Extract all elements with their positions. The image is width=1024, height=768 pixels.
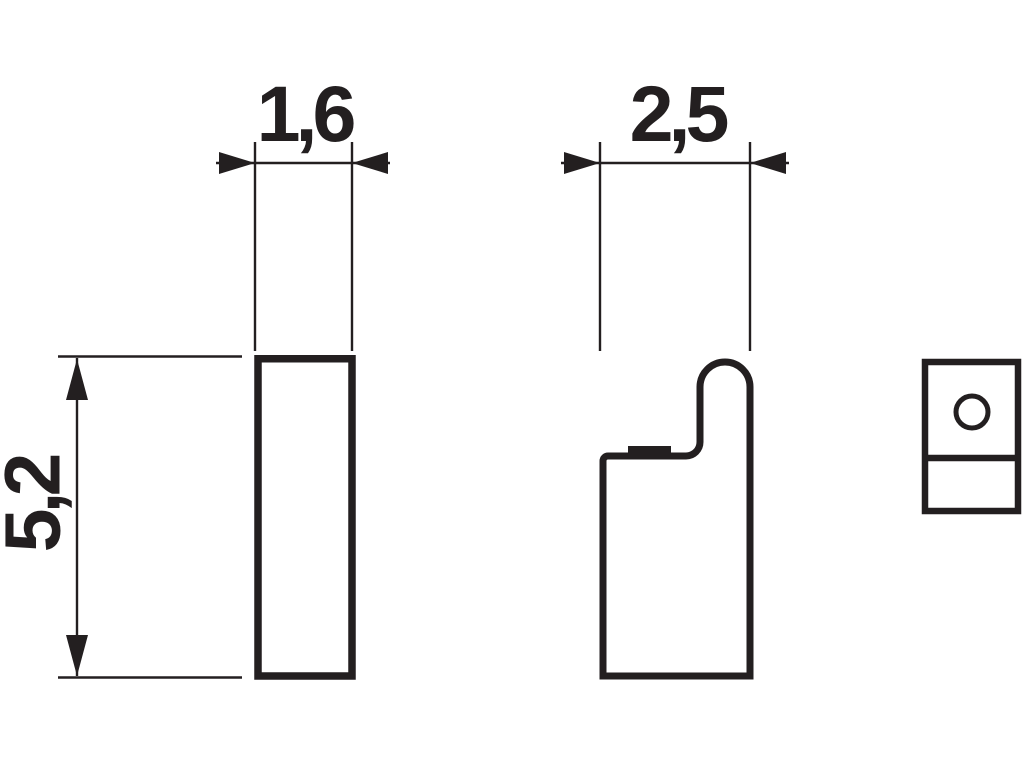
dim-height-arrow-bottom [66,635,88,676]
dim-label-height: 5,2 [0,458,72,553]
drawing-linework [0,0,1024,768]
end-view-outline [925,362,1018,511]
hole-circle [956,396,988,428]
end-view [922,362,1021,511]
front-view-outline [258,359,352,676]
dim-side-depth-arrow-left [564,152,600,174]
dim-side-depth-arrow-right [750,152,786,174]
front-view [258,359,352,676]
dim-height-arrow-top [66,359,88,400]
dim-front-width-arrow-right [352,152,388,174]
side-view-hook-outline [603,362,750,676]
side-view [603,362,750,676]
dim-front-width-arrow-left [219,152,255,174]
dim-height [58,357,242,678]
technical-drawing: 1,6 2,5 5,2 [0,0,1024,768]
dim-front-width [216,142,390,351]
dim-label-front-width: 1,6 [257,74,352,153]
dim-side-depth [561,142,789,351]
side-view-pad-detail [628,446,671,459]
dim-label-side-depth: 2,5 [630,74,725,153]
